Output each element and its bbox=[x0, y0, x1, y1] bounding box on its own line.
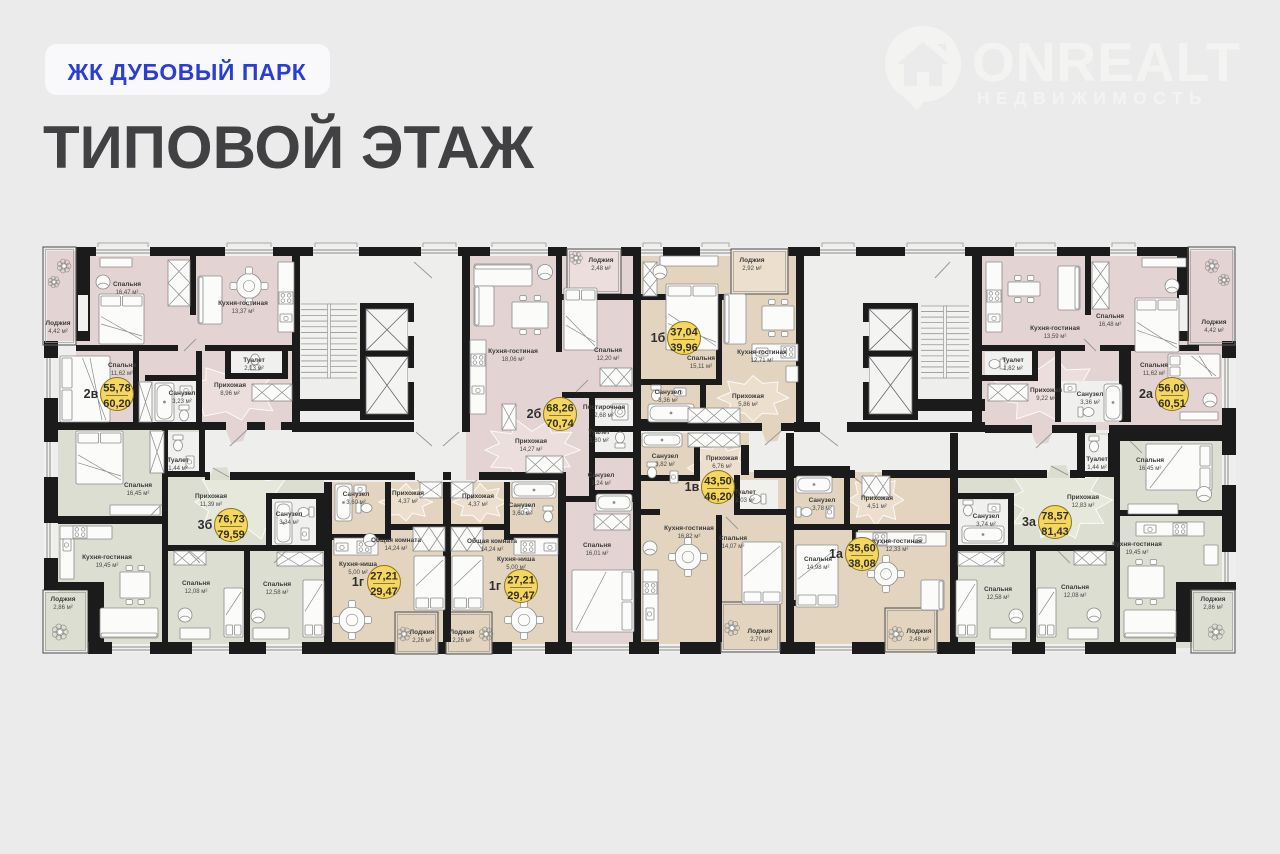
svg-text:Общая комната: Общая комната bbox=[371, 536, 421, 544]
svg-text:Лоджия: Лоджия bbox=[748, 628, 773, 635]
svg-text:60,51: 60,51 bbox=[1158, 398, 1186, 410]
svg-text:Спальня: Спальня bbox=[804, 556, 832, 563]
svg-text:2в: 2в bbox=[84, 387, 99, 401]
svg-text:12,58 м²: 12,58 м² bbox=[987, 595, 1010, 601]
svg-text:Санузел: Санузел bbox=[973, 513, 1000, 520]
svg-text:12,33 м²: 12,33 м² bbox=[886, 547, 909, 553]
svg-text:14,24 м²: 14,24 м² bbox=[385, 546, 408, 552]
svg-text:1г: 1г bbox=[352, 575, 364, 589]
svg-text:12,20 м²: 12,20 м² bbox=[597, 356, 620, 362]
svg-text:Спальня: Спальня bbox=[108, 362, 136, 369]
svg-text:Спальня: Спальня bbox=[113, 281, 141, 288]
svg-text:Санузел: Санузел bbox=[809, 497, 836, 504]
svg-text:3б: 3б bbox=[198, 518, 213, 532]
svg-text:4,42 м²: 4,42 м² bbox=[1204, 328, 1223, 334]
svg-text:Лоджия: Лоджия bbox=[907, 628, 932, 635]
svg-text:Постирочная: Постирочная bbox=[583, 404, 625, 411]
svg-text:3,74 м²: 3,74 м² bbox=[976, 522, 995, 528]
svg-text:Общая комната: Общая комната bbox=[467, 537, 517, 545]
svg-text:Туалет: Туалет bbox=[1002, 357, 1024, 364]
svg-text:2,86 м²: 2,86 м² bbox=[1203, 605, 1222, 611]
svg-text:16,47 м²: 16,47 м² bbox=[116, 290, 139, 296]
svg-text:Лоджия: Лоджия bbox=[589, 257, 614, 264]
svg-text:56,09: 56,09 bbox=[1158, 383, 1186, 395]
svg-text:Прихожая: Прихожая bbox=[392, 490, 424, 497]
svg-text:38,08: 38,08 bbox=[848, 558, 876, 570]
svg-text:Прихожая: Прихожая bbox=[1067, 494, 1099, 501]
svg-text:Санузел: Санузел bbox=[652, 453, 679, 460]
svg-text:3а: 3а bbox=[1022, 515, 1037, 529]
svg-text:НЕДВИЖИМОСТЬ: НЕДВИЖИМОСТЬ bbox=[977, 88, 1208, 108]
svg-text:Кухня-гостиная: Кухня-гостиная bbox=[1112, 541, 1162, 548]
svg-text:Спальня: Спальня bbox=[1061, 584, 1089, 591]
svg-text:1в: 1в bbox=[685, 480, 700, 494]
svg-text:2,92 м²: 2,92 м² bbox=[742, 266, 761, 272]
svg-text:3,36 м²: 3,36 м² bbox=[658, 398, 677, 404]
svg-text:11,62 м²: 11,62 м² bbox=[1143, 371, 1165, 377]
svg-text:2,03 м²: 2,03 м² bbox=[735, 498, 754, 504]
svg-text:18,06 м²: 18,06 м² bbox=[502, 357, 525, 363]
svg-text:4,42 м²: 4,42 м² bbox=[48, 329, 67, 335]
svg-text:2б: 2б bbox=[527, 407, 542, 421]
svg-text:4,37 м²: 4,37 м² bbox=[468, 502, 487, 508]
svg-text:35,60: 35,60 bbox=[848, 543, 876, 555]
svg-text:19,45 м²: 19,45 м² bbox=[96, 563, 119, 569]
svg-text:Санузел: Санузел bbox=[276, 511, 303, 518]
svg-text:3,36 м²: 3,36 м² bbox=[1080, 400, 1099, 406]
svg-text:Туалет: Туалет bbox=[588, 429, 610, 436]
svg-text:16,82 м²: 16,82 м² bbox=[678, 534, 701, 540]
svg-text:19,45 м²: 19,45 м² bbox=[1126, 550, 1149, 556]
svg-text:Спальня: Спальня bbox=[583, 542, 611, 549]
svg-text:Прихожая: Прихожая bbox=[214, 382, 246, 389]
svg-text:29,47: 29,47 bbox=[507, 590, 535, 602]
svg-text:70,74: 70,74 bbox=[546, 418, 574, 430]
svg-text:29,47: 29,47 bbox=[370, 586, 398, 598]
svg-text:2,26 м²: 2,26 м² bbox=[452, 638, 471, 644]
svg-text:37,04: 37,04 bbox=[670, 327, 698, 339]
svg-text:Прихожая: Прихожая bbox=[462, 493, 494, 500]
svg-text:Кухня-гостиная: Кухня-гостиная bbox=[872, 538, 922, 545]
svg-text:ЖК ДУБОВЫЙ ПАРК: ЖК ДУБОВЫЙ ПАРК bbox=[67, 58, 307, 85]
svg-text:3,78 м²: 3,78 м² bbox=[812, 506, 831, 512]
svg-text:11,62 м²: 11,62 м² bbox=[111, 371, 133, 377]
svg-text:Кухня-гостиная: Кухня-гостиная bbox=[664, 525, 714, 532]
svg-text:Кухня-гостиная: Кухня-гостиная bbox=[488, 348, 538, 355]
svg-text:4,37 м²: 4,37 м² bbox=[398, 499, 417, 505]
svg-text:12,58 м²: 12,58 м² bbox=[266, 590, 289, 596]
svg-text:2,26 м²: 2,26 м² bbox=[412, 638, 431, 644]
svg-text:76,73: 76,73 bbox=[217, 514, 245, 526]
svg-text:1,44 м²: 1,44 м² bbox=[168, 466, 187, 472]
svg-text:Санузел: Санузел bbox=[343, 491, 370, 498]
svg-text:Спальня: Спальня bbox=[1140, 362, 1168, 369]
svg-text:Спальня: Спальня bbox=[984, 586, 1012, 593]
svg-text:81,43: 81,43 bbox=[1041, 526, 1069, 538]
svg-text:Туалет: Туалет bbox=[1086, 456, 1108, 463]
svg-text:Спальня: Спальня bbox=[263, 581, 291, 588]
svg-text:Лоджия: Лоджия bbox=[1201, 596, 1226, 603]
svg-text:Лоджия: Лоджия bbox=[410, 629, 435, 636]
svg-text:Кухня-гостиная: Кухня-гостиная bbox=[82, 554, 132, 561]
svg-text:12,08 м²: 12,08 м² bbox=[1064, 593, 1087, 599]
svg-text:Кухня-ниша: Кухня-ниша bbox=[497, 556, 535, 563]
svg-text:Лоджия: Лоджия bbox=[46, 320, 71, 327]
svg-text:1,82 м²: 1,82 м² bbox=[1003, 366, 1022, 372]
svg-text:68,26: 68,26 bbox=[546, 403, 574, 415]
svg-text:Прихожая: Прихожая bbox=[706, 455, 738, 462]
svg-text:13,37 м²: 13,37 м² bbox=[232, 309, 255, 315]
svg-text:2,68 м²: 2,68 м² bbox=[594, 413, 613, 419]
svg-text:55,78: 55,78 bbox=[103, 383, 131, 395]
svg-text:15,11 м²: 15,11 м² bbox=[690, 364, 712, 370]
svg-text:12,71 м²: 12,71 м² bbox=[751, 358, 774, 364]
svg-text:2,86 м²: 2,86 м² bbox=[53, 605, 72, 611]
svg-text:13,59 м²: 13,59 м² bbox=[1044, 334, 1067, 340]
svg-text:39,96: 39,96 bbox=[670, 342, 698, 354]
svg-text:Лоджия: Лоджия bbox=[740, 257, 765, 264]
svg-text:Санузел: Санузел bbox=[169, 390, 196, 397]
svg-text:3,24 м²: 3,24 м² bbox=[591, 481, 610, 487]
svg-text:3,60 м²: 3,60 м² bbox=[512, 511, 531, 517]
svg-text:Прихожая: Прихожая bbox=[732, 393, 764, 400]
svg-text:Спальня: Спальня bbox=[1136, 457, 1164, 464]
svg-text:2а: 2а bbox=[1139, 387, 1154, 401]
svg-text:12,08 м²: 12,08 м² bbox=[185, 589, 208, 595]
svg-text:Туалет: Туалет bbox=[167, 457, 189, 464]
svg-text:2,48 м²: 2,48 м² bbox=[591, 266, 610, 272]
svg-text:Прихожая: Прихожая bbox=[515, 438, 547, 445]
svg-text:3,34 м²: 3,34 м² bbox=[279, 520, 298, 526]
svg-text:Санузел: Санузел bbox=[509, 502, 536, 509]
svg-text:79,59: 79,59 bbox=[217, 529, 245, 541]
svg-text:Санузел: Санузел bbox=[588, 472, 615, 479]
svg-text:Прихожая: Прихожая bbox=[1030, 387, 1062, 394]
svg-text:2,13 м²: 2,13 м² bbox=[244, 366, 263, 372]
svg-text:Прихожая: Прихожая bbox=[861, 495, 893, 502]
svg-text:Спальня: Спальня bbox=[124, 482, 152, 489]
svg-text:27,21: 27,21 bbox=[507, 575, 535, 587]
svg-text:11,39 м²: 11,39 м² bbox=[200, 502, 222, 508]
svg-text:Кухня-гостиная: Кухня-гостиная bbox=[1030, 325, 1080, 332]
svg-text:Кухня-гостиная: Кухня-гостиная bbox=[737, 349, 787, 356]
svg-text:Кухня-ниша: Кухня-ниша bbox=[339, 561, 377, 568]
svg-text:14,27 м²: 14,27 м² bbox=[520, 447, 543, 453]
svg-text:78,57: 78,57 bbox=[1041, 511, 1069, 523]
svg-text:8,96 м²: 8,96 м² bbox=[220, 391, 239, 397]
svg-text:Прихожая: Прихожая bbox=[195, 493, 227, 500]
svg-text:Спальня: Спальня bbox=[594, 347, 622, 354]
svg-text:Спальня: Спальня bbox=[719, 535, 747, 542]
svg-text:46,20: 46,20 bbox=[704, 491, 732, 503]
svg-text:3,82 м²: 3,82 м² bbox=[655, 462, 674, 468]
svg-text:Лоджия: Лоджия bbox=[51, 596, 76, 603]
svg-text:1а: 1а bbox=[829, 547, 844, 561]
svg-text:ONREALT: ONREALT bbox=[972, 31, 1241, 93]
svg-text:43,50: 43,50 bbox=[704, 476, 732, 488]
svg-text:Спальня: Спальня bbox=[687, 355, 715, 362]
svg-text:4,51 м²: 4,51 м² bbox=[867, 504, 886, 510]
svg-text:2,70 м²: 2,70 м² bbox=[750, 637, 769, 643]
svg-text:Санузел: Санузел bbox=[655, 389, 682, 396]
svg-text:12,83 м²: 12,83 м² bbox=[1072, 503, 1095, 509]
svg-text:5,86 м²: 5,86 м² bbox=[738, 402, 757, 408]
svg-text:Лоджия: Лоджия bbox=[450, 629, 475, 636]
svg-text:Кухня-гостиная: Кухня-гостиная bbox=[218, 300, 268, 307]
svg-text:3,23 м²: 3,23 м² bbox=[172, 399, 191, 405]
svg-text:16,48 м²: 16,48 м² bbox=[1099, 322, 1122, 328]
svg-text:1,80 м²: 1,80 м² bbox=[589, 438, 608, 444]
svg-text:Туалет: Туалет bbox=[243, 357, 265, 364]
svg-text:1,44 м²: 1,44 м² bbox=[1087, 465, 1106, 471]
svg-text:Спальня: Спальня bbox=[182, 580, 210, 587]
svg-text:14,98 м²: 14,98 м² bbox=[807, 565, 830, 571]
svg-text:ТИПОВОЙ ЭТАЖ: ТИПОВОЙ ЭТАЖ bbox=[43, 114, 535, 181]
svg-text:16,45 м²: 16,45 м² bbox=[127, 491, 150, 497]
svg-text:16,01 м²: 16,01 м² bbox=[586, 551, 609, 557]
svg-text:Лоджия: Лоджия bbox=[1202, 319, 1227, 326]
svg-text:1г: 1г bbox=[489, 579, 501, 593]
svg-text:Туалет: Туалет bbox=[734, 489, 756, 496]
svg-text:3,60 м²: 3,60 м² bbox=[346, 500, 365, 506]
svg-text:6,76 м²: 6,76 м² bbox=[712, 464, 731, 470]
svg-text:14,07 м²: 14,07 м² bbox=[722, 544, 745, 550]
svg-text:60,20: 60,20 bbox=[103, 398, 131, 410]
svg-text:27,21: 27,21 bbox=[370, 571, 398, 583]
svg-text:9,22 м²: 9,22 м² bbox=[1036, 396, 1055, 402]
svg-text:1б: 1б bbox=[651, 331, 666, 345]
svg-text:16,45 м²: 16,45 м² bbox=[1139, 466, 1162, 472]
svg-text:2,48 м²: 2,48 м² bbox=[909, 637, 928, 643]
svg-text:Санузел: Санузел bbox=[1077, 391, 1104, 398]
svg-text:14,24 м²: 14,24 м² bbox=[481, 547, 504, 553]
svg-text:Спальня: Спальня bbox=[1096, 313, 1124, 320]
